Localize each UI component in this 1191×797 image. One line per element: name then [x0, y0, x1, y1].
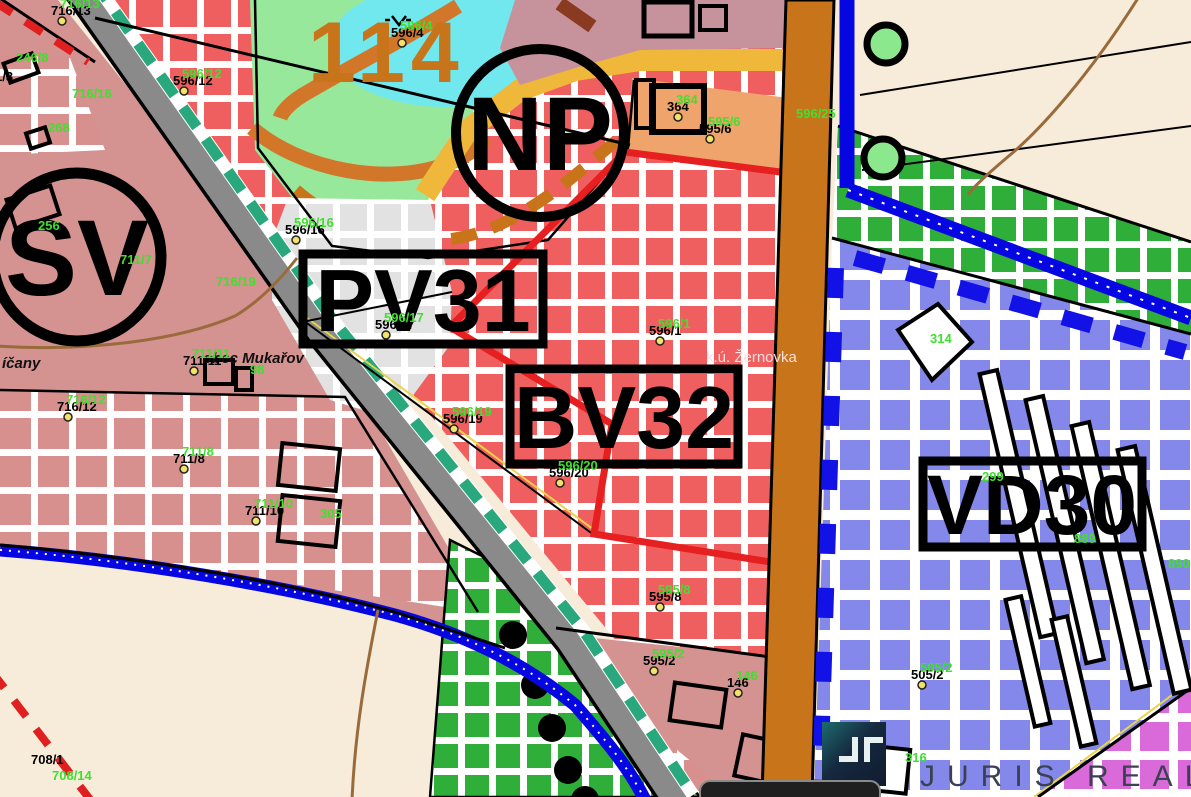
- svg-text:98: 98: [250, 362, 264, 377]
- parcel-label: 256: [38, 218, 60, 233]
- svg-text:256: 256: [38, 218, 60, 233]
- parcel-label: 246/8: [16, 50, 49, 65]
- pv31-zone-label: PV31: [315, 251, 530, 350]
- svg-text:711/7: 711/7: [120, 252, 152, 267]
- svg-text:596/20: 596/20: [558, 458, 598, 473]
- svg-text:595/2: 595/2: [652, 646, 685, 661]
- parcel-label: 314: [930, 331, 952, 346]
- svg-text:716/13: 716/13: [60, 0, 100, 11]
- parcel-label: 716/19: [216, 274, 256, 289]
- bv32-zone-label: BV32: [514, 368, 734, 467]
- svg-text:708/14: 708/14: [52, 768, 93, 783]
- parcel-label: 890: [1168, 556, 1190, 571]
- parcel-label: 299: [982, 469, 1004, 484]
- parcel-label: 889: [1074, 531, 1096, 546]
- svg-text:716/12: 716/12: [66, 392, 106, 407]
- parcel-label: 708/1: [31, 752, 64, 767]
- parcel-label: 711/7: [120, 252, 152, 267]
- tree-symbol: [867, 25, 905, 63]
- zoning-map-screenshot: NP SV PV31 BV32 VD30 114 obec Mukařov íč…: [0, 0, 1191, 797]
- svg-text:711/10: 711/10: [254, 496, 293, 511]
- parcel-label: 708/14: [52, 768, 93, 783]
- svg-text:596/1: 596/1: [658, 316, 691, 331]
- svg-text:716/19: 716/19: [216, 274, 256, 289]
- svg-text:596/19: 596/19: [452, 404, 492, 419]
- map-control-bar[interactable]: [700, 781, 880, 797]
- np-zone-label: NP: [467, 76, 613, 193]
- svg-text:314: 314: [930, 331, 952, 346]
- svg-text:595/8: 595/8: [658, 582, 691, 597]
- area-number-label: 114: [308, 5, 465, 101]
- parcel-label: 268: [48, 120, 70, 135]
- svg-text:711/11: 711/11: [192, 346, 230, 361]
- svg-text:716/16: 716/16: [72, 86, 112, 101]
- vd30-zone-label: VD30: [927, 458, 1137, 552]
- svg-text:146: 146: [736, 668, 758, 683]
- svg-text:889: 889: [1074, 531, 1096, 546]
- svg-text:246/8: 246/8: [16, 50, 49, 65]
- neighbor-municipality-label: íčany: [2, 355, 41, 372]
- tree-symbol: [864, 139, 902, 177]
- svg-text:305: 305: [320, 506, 342, 521]
- svg-text:268: 268: [48, 120, 70, 135]
- svg-text:708/1: 708/1: [31, 752, 64, 767]
- svg-text:596/25: 596/25: [796, 106, 836, 121]
- svg-text:596/17: 596/17: [384, 310, 424, 325]
- watermark-text: JURIS REAL: [920, 760, 1191, 793]
- svg-text:505/2: 505/2: [920, 660, 953, 675]
- svg-text:364: 364: [676, 92, 698, 107]
- parcel-label: 596/25: [796, 106, 836, 121]
- svg-text:890: 890: [1168, 556, 1190, 571]
- parcel-label: 98: [250, 362, 264, 377]
- svg-text:711/8: 711/8: [182, 444, 214, 459]
- svg-text:299: 299: [982, 469, 1004, 484]
- svg-text:596/16: 596/16: [294, 215, 334, 230]
- svg-text:596/4: 596/4: [400, 18, 433, 33]
- parcel-label: 305: [320, 506, 342, 521]
- cadastre-label: k.ú. Žernovka: [706, 349, 798, 366]
- parcel-label: 1/3: [0, 69, 13, 84]
- parcel-label: 716/16: [72, 86, 112, 101]
- svg-text:596/12: 596/12: [182, 66, 222, 81]
- zoning-map: NP SV PV31 BV32 VD30 114 obec Mukařov íč…: [0, 0, 1191, 797]
- svg-text:1/3: 1/3: [0, 69, 13, 84]
- svg-text:595/6: 595/6: [708, 114, 741, 129]
